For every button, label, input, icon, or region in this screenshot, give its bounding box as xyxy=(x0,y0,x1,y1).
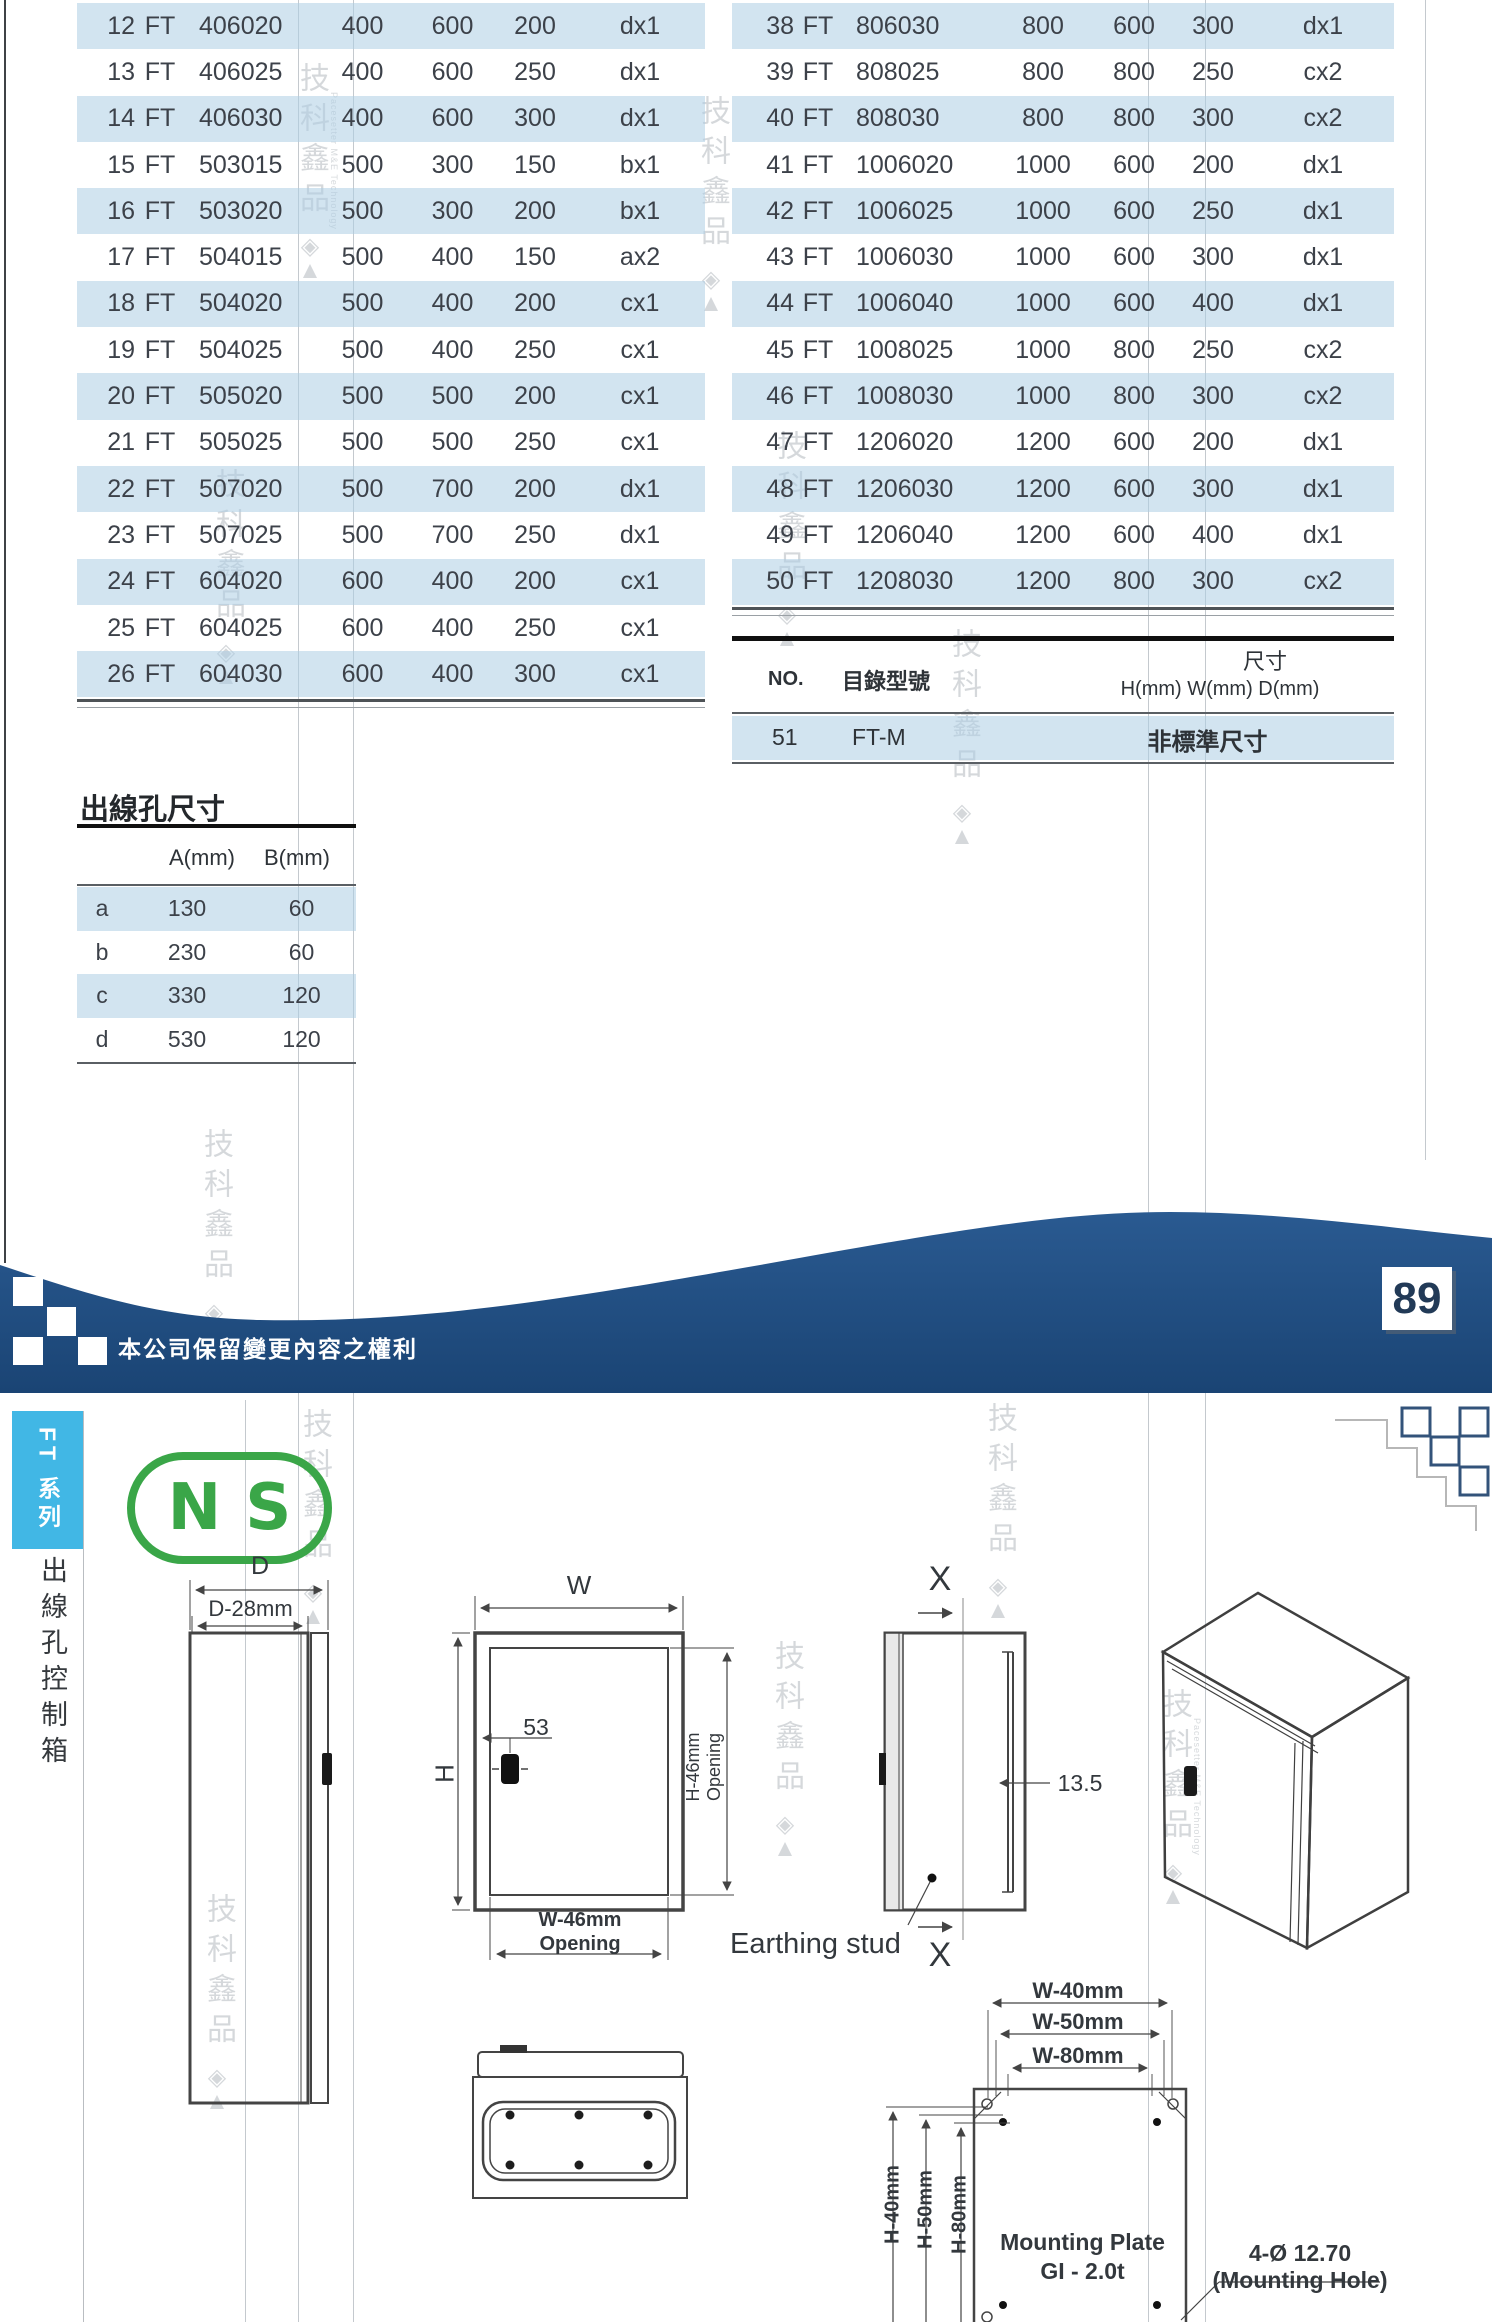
cell-brand: FT xyxy=(135,12,185,41)
custom-table-model-header: 目錄型號 xyxy=(842,664,930,696)
table-row: 50 FT 1208030 1200 800 300 cx2 xyxy=(732,559,1394,605)
cell-model: 504020 xyxy=(185,289,315,318)
cell-type: bx1 xyxy=(575,151,705,180)
table-end-rule xyxy=(732,607,1394,616)
cell-brand: FT xyxy=(794,521,842,550)
cell-model: 808030 xyxy=(842,104,992,133)
cell-model: 1008025 xyxy=(842,336,992,365)
cell-no: 48 xyxy=(732,475,794,504)
dim-label-h50: H-50mm xyxy=(915,2165,938,2255)
checker-square xyxy=(78,1337,107,1365)
cell-type: dx1 xyxy=(1252,243,1394,272)
cell-d: 200 xyxy=(495,12,575,41)
cell-no: 22 xyxy=(77,475,135,504)
cell-model: 406020 xyxy=(185,12,315,41)
cell-type: cx1 xyxy=(575,289,705,318)
cell-a: 130 xyxy=(127,895,247,922)
table-row: 38 FT 806030 800 600 300 dx1 xyxy=(732,3,1394,49)
cell-no: 16 xyxy=(77,197,135,226)
cell-type: cx1 xyxy=(575,336,705,365)
cell-brand: FT xyxy=(794,382,842,411)
cell-d: 200 xyxy=(1174,428,1252,457)
cell-d: 300 xyxy=(1174,104,1252,133)
cell-type: cx2 xyxy=(1252,336,1394,365)
cell-w: 600 xyxy=(1094,475,1174,504)
cell-a: 330 xyxy=(127,982,247,1009)
catalog-table-right: 38 FT 806030 800 600 300 dx1 39 FT 80802… xyxy=(732,3,1394,605)
cell-h: 500 xyxy=(315,197,410,226)
cell-w: 500 xyxy=(410,382,495,411)
side-view-drawing xyxy=(190,1580,332,2103)
catalog-table-left: 12 FT 406020 400 600 200 dx1 13 FT 40602… xyxy=(77,3,705,697)
cell-brand: FT xyxy=(794,336,842,365)
cell-no: 50 xyxy=(732,567,794,596)
cell-brand: FT xyxy=(135,614,185,643)
cell-d: 300 xyxy=(495,104,575,133)
cell-b: 120 xyxy=(247,1026,356,1053)
table-row: 45 FT 1008025 1000 800 250 cx2 xyxy=(732,327,1394,373)
table-row: 39 FT 808025 800 800 250 cx2 xyxy=(732,49,1394,95)
table-end-rule xyxy=(77,699,705,708)
section-mark-x-top: X xyxy=(915,1560,965,1599)
cell-h: 1200 xyxy=(992,428,1094,457)
cell-brand: FT xyxy=(135,567,185,596)
table-row: 16 FT 503020 500 300 200 bx1 xyxy=(77,188,705,234)
cell-no: 43 xyxy=(732,243,794,272)
cell-brand: FT xyxy=(794,104,842,133)
cell-w: 600 xyxy=(1094,428,1174,457)
cell-model: 504025 xyxy=(185,336,315,365)
table-row: 26 FT 604030 600 400 300 cx1 xyxy=(77,651,705,697)
cell-no: 19 xyxy=(77,336,135,365)
cell-type: dx1 xyxy=(1252,197,1394,226)
cell-model: 1006030 xyxy=(842,243,992,272)
cell-type: dx1 xyxy=(575,12,705,41)
table-row: a 130 60 xyxy=(77,887,356,931)
table-row: b 230 60 xyxy=(77,931,356,975)
cell-w: 700 xyxy=(410,475,495,504)
cell-type: ax2 xyxy=(575,243,705,272)
table-row: 47 FT 1206020 1200 600 200 dx1 xyxy=(732,420,1394,466)
cell-w: 600 xyxy=(1094,151,1174,180)
cell-no: 26 xyxy=(77,660,135,689)
bottom-view-drawing xyxy=(473,2045,687,2198)
cell-type: dx1 xyxy=(1252,428,1394,457)
cell-model: 604030 xyxy=(185,660,315,689)
table-row: 21 FT 505025 500 500 250 cx1 xyxy=(77,420,705,466)
cell-brand: FT xyxy=(135,243,185,272)
custom-table-size-header: 尺寸 xyxy=(1230,644,1300,676)
cell-model: 1208030 xyxy=(842,567,992,596)
table-row: 40 FT 808030 800 800 300 cx2 xyxy=(732,96,1394,142)
cell-h: 800 xyxy=(992,12,1094,41)
cell-w: 400 xyxy=(410,243,495,272)
cell-h: 500 xyxy=(315,475,410,504)
table-row: 14 FT 406030 400 600 300 dx1 xyxy=(77,96,705,142)
cell-brand: FT xyxy=(135,104,185,133)
cell-a: 530 xyxy=(127,1026,247,1053)
cell-h: 500 xyxy=(315,151,410,180)
table-row: 48 FT 1206030 1200 600 300 dx1 xyxy=(732,466,1394,512)
cell-model: 503015 xyxy=(185,151,315,180)
cell-brand: FT xyxy=(135,428,185,457)
cell-brand: FT xyxy=(794,243,842,272)
cell-brand: FT xyxy=(135,382,185,411)
cell-w: 400 xyxy=(410,336,495,365)
cell-b: 60 xyxy=(247,895,356,922)
dim-label-w46-opening: W-46mm Opening xyxy=(530,1908,630,1956)
cell-h: 400 xyxy=(315,104,410,133)
table-row: 15 FT 503015 500 300 150 bx1 xyxy=(77,142,705,188)
cell-brand: FT xyxy=(135,475,185,504)
cell-type: cx1 xyxy=(575,382,705,411)
checker-square xyxy=(47,1307,76,1336)
cell-d: 250 xyxy=(495,428,575,457)
cell-h: 400 xyxy=(315,12,410,41)
cell-model: 406025 xyxy=(185,58,315,87)
cell-model: 503020 xyxy=(185,197,315,226)
cell-brand: FT xyxy=(135,660,185,689)
cell-model: 1006020 xyxy=(842,151,992,180)
cell-type: cx1 xyxy=(575,614,705,643)
cell-type: cx1 xyxy=(575,567,705,596)
cell-w: 600 xyxy=(1094,12,1174,41)
cell-no: 46 xyxy=(732,382,794,411)
custom-table-size-subheader: H(mm) W(mm) D(mm) xyxy=(1095,678,1345,701)
cell-model: 1206030 xyxy=(842,475,992,504)
table-row: 43 FT 1006030 1000 600 300 dx1 xyxy=(732,234,1394,280)
cell-d: 200 xyxy=(495,475,575,504)
cell-model: 504015 xyxy=(185,243,315,272)
corner-decoration xyxy=(1335,1398,1500,1538)
page-edge-line xyxy=(4,0,6,1263)
cell-h: 1000 xyxy=(992,289,1094,318)
cell-no: 15 xyxy=(77,151,135,180)
cell-brand: FT xyxy=(794,428,842,457)
dim-label-135: 13.5 xyxy=(1048,1770,1112,1797)
cell-type: cx1 xyxy=(575,428,705,457)
cell-type: dx1 xyxy=(1252,521,1394,550)
table-row: 17 FT 504015 500 400 150 ax2 xyxy=(77,234,705,280)
cell-h: 600 xyxy=(315,614,410,643)
table-row: 49 FT 1206040 1200 600 400 dx1 xyxy=(732,512,1394,558)
cell-no: 14 xyxy=(77,104,135,133)
cell-type: dx1 xyxy=(575,475,705,504)
cell-d: 150 xyxy=(495,151,575,180)
cell-d: 250 xyxy=(1174,197,1252,226)
cell-b: 120 xyxy=(247,982,356,1009)
cell-h: 400 xyxy=(315,58,410,87)
cell-model: 1006025 xyxy=(842,197,992,226)
cell-w: 400 xyxy=(410,660,495,689)
cell-d: 300 xyxy=(495,660,575,689)
table-row: 41 FT 1006020 1000 600 200 dx1 xyxy=(732,142,1394,188)
cell-no: 23 xyxy=(77,521,135,550)
cell-d: 150 xyxy=(495,243,575,272)
opening-table-header-rule xyxy=(77,884,356,886)
custom-row-model: FT-M xyxy=(852,724,906,751)
cell-no: 45 xyxy=(732,336,794,365)
cell-h: 1200 xyxy=(992,567,1094,596)
cell-type: dx1 xyxy=(1252,289,1394,318)
section-view-drawing xyxy=(879,1598,1050,1940)
cell-brand: FT xyxy=(794,567,842,596)
cell-brand: FT xyxy=(135,336,185,365)
cell-model: 1206040 xyxy=(842,521,992,550)
cell-w: 600 xyxy=(1094,243,1174,272)
cell-model: 808025 xyxy=(842,58,992,87)
series-tab-label: FT 系列 xyxy=(31,1427,65,1533)
cell-h: 600 xyxy=(315,567,410,596)
cell-h: 500 xyxy=(315,243,410,272)
isometric-view-drawing xyxy=(1163,1593,1408,1948)
cell-brand: FT xyxy=(794,475,842,504)
table-row: 25 FT 604025 600 400 250 cx1 xyxy=(77,605,705,651)
table-row: c 330 120 xyxy=(77,974,356,1018)
cell-type: cx1 xyxy=(575,660,705,689)
page-number: 89 xyxy=(1393,1274,1442,1324)
opening-table: a 130 60 b 230 60 c 330 120 d 530 120 xyxy=(77,887,356,1061)
cell-w: 600 xyxy=(1094,289,1174,318)
cell-type: cx2 xyxy=(1252,382,1394,411)
cell-w: 600 xyxy=(1094,521,1174,550)
table-row: 46 FT 1008030 1000 800 300 cx2 xyxy=(732,373,1394,419)
custom-table-header-rule xyxy=(732,712,1394,714)
cell-type: cx2 xyxy=(1252,567,1394,596)
cell-d: 250 xyxy=(495,614,575,643)
cell-brand: FT xyxy=(794,151,842,180)
cell-w: 600 xyxy=(410,12,495,41)
cell-h: 500 xyxy=(315,336,410,365)
dim-label-d28: D-28mm xyxy=(198,1596,303,1622)
cell-no: 49 xyxy=(732,521,794,550)
cell-w: 600 xyxy=(410,58,495,87)
cell-brand: FT xyxy=(135,289,185,318)
cell-type: dx1 xyxy=(575,58,705,87)
cell-d: 300 xyxy=(1174,243,1252,272)
cell-type: dx1 xyxy=(1252,12,1394,41)
cell-h: 800 xyxy=(992,58,1094,87)
cell-w: 300 xyxy=(410,197,495,226)
cell-no: 41 xyxy=(732,151,794,180)
cell-d: 250 xyxy=(1174,58,1252,87)
cell-h: 600 xyxy=(315,660,410,689)
cell-brand: FT xyxy=(135,521,185,550)
cell-d: 200 xyxy=(495,289,575,318)
cell-no: 42 xyxy=(732,197,794,226)
table-row: 13 FT 406025 400 600 250 dx1 xyxy=(77,49,705,95)
dim-label-d: D xyxy=(238,1552,282,1581)
cell-model: 505025 xyxy=(185,428,315,457)
cell-brand: FT xyxy=(794,12,842,41)
dim-label-h40: H-40mm xyxy=(882,2160,905,2250)
table-row: 44 FT 1006040 1000 600 400 dx1 xyxy=(732,281,1394,327)
cell-d: 250 xyxy=(495,521,575,550)
table-row: 18 FT 504020 500 400 200 cx1 xyxy=(77,281,705,327)
cell-d: 250 xyxy=(495,58,575,87)
table-row: 22 FT 507020 500 700 200 dx1 xyxy=(77,466,705,512)
cell-no: 12 xyxy=(77,12,135,41)
catalog-page: 技科鑫品 ◈▲ Pacesetter M&E Technology 技科鑫品 ◈… xyxy=(0,0,1500,2322)
cell-w: 600 xyxy=(410,104,495,133)
cell-h: 800 xyxy=(992,104,1094,133)
cell-no: 18 xyxy=(77,289,135,318)
cell-w: 300 xyxy=(410,151,495,180)
table-row: 42 FT 1006025 1000 600 250 dx1 xyxy=(732,188,1394,234)
cell-h: 1200 xyxy=(992,521,1094,550)
cell-type: bx1 xyxy=(575,197,705,226)
cell-h: 1000 xyxy=(992,197,1094,226)
cell-w: 800 xyxy=(1094,104,1174,133)
dim-label-h46-opening: H-46mm Opening xyxy=(683,1711,725,1823)
cell-d: 200 xyxy=(495,382,575,411)
cell-w: 800 xyxy=(1094,336,1174,365)
cell-no: 25 xyxy=(77,614,135,643)
cell-model: 806030 xyxy=(842,12,992,41)
opening-table-bottom-rule xyxy=(77,1062,356,1064)
cell-model: 1206020 xyxy=(842,428,992,457)
cell-no: 20 xyxy=(77,382,135,411)
dim-label-h: H xyxy=(430,1754,461,1794)
table-row: 24 FT 604020 600 400 200 cx1 xyxy=(77,559,705,605)
cell-brand: FT xyxy=(794,58,842,87)
cell-brand: FT xyxy=(135,197,185,226)
cell-model: 604025 xyxy=(185,614,315,643)
cell-d: 400 xyxy=(1174,289,1252,318)
cell-b: 60 xyxy=(247,939,356,966)
cell-model: 507020 xyxy=(185,475,315,504)
cell-no: 38 xyxy=(732,12,794,41)
cell-brand: FT xyxy=(135,58,185,87)
table-row: d 530 120 xyxy=(77,1018,356,1062)
guide-line xyxy=(1425,0,1426,1160)
watermark-logo-icon: ◈▲ xyxy=(941,801,983,849)
cell-d: 250 xyxy=(1174,336,1252,365)
cell-type: dx1 xyxy=(575,521,705,550)
cell-type: dx1 xyxy=(1252,151,1394,180)
table-row: 19 FT 504025 500 400 250 cx1 xyxy=(77,327,705,373)
checker-square xyxy=(13,1337,43,1365)
cell-w: 800 xyxy=(1094,567,1174,596)
cell-d: 300 xyxy=(1174,475,1252,504)
cell-key: d xyxy=(77,1026,127,1053)
table-row: 23 FT 507025 500 700 250 dx1 xyxy=(77,512,705,558)
cell-d: 300 xyxy=(1174,382,1252,411)
dim-label-w80: W-80mm xyxy=(1028,2043,1128,2069)
custom-table-no-header: NO. xyxy=(768,668,804,691)
cell-brand: FT xyxy=(794,289,842,318)
cell-d: 200 xyxy=(495,197,575,226)
dim-label-h80: H-80mm xyxy=(949,2170,972,2260)
cell-h: 1000 xyxy=(992,151,1094,180)
cell-type: cx2 xyxy=(1252,58,1394,87)
cell-d: 300 xyxy=(1174,12,1252,41)
cell-h: 500 xyxy=(315,428,410,457)
cell-no: 21 xyxy=(77,428,135,457)
cell-no: 13 xyxy=(77,58,135,87)
ns-logo-text: NS xyxy=(144,1471,316,1545)
cell-type: dx1 xyxy=(1252,475,1394,504)
cell-no: 47 xyxy=(732,428,794,457)
cell-a: 230 xyxy=(127,939,247,966)
cell-w: 800 xyxy=(1094,382,1174,411)
cell-key: c xyxy=(77,982,127,1009)
cell-w: 800 xyxy=(1094,58,1174,87)
cell-type: dx1 xyxy=(575,104,705,133)
cell-w: 400 xyxy=(410,567,495,596)
cell-w: 600 xyxy=(1094,197,1174,226)
cell-no: 39 xyxy=(732,58,794,87)
cell-w: 400 xyxy=(410,614,495,643)
cell-no: 17 xyxy=(77,243,135,272)
opening-table-col-a: A(mm) xyxy=(147,845,257,871)
cell-no: 44 xyxy=(732,289,794,318)
cell-h: 1000 xyxy=(992,382,1094,411)
cell-h: 500 xyxy=(315,289,410,318)
cell-h: 1000 xyxy=(992,336,1094,365)
page-number-badge: 89 xyxy=(1382,1267,1452,1330)
dim-label-53: 53 xyxy=(514,1714,558,1741)
cell-key: a xyxy=(77,895,127,922)
cell-type: cx2 xyxy=(1252,104,1394,133)
cell-h: 500 xyxy=(315,382,410,411)
cell-model: 1008030 xyxy=(842,382,992,411)
custom-table-top-rule xyxy=(732,636,1394,641)
cell-h: 1200 xyxy=(992,475,1094,504)
cell-model: 406030 xyxy=(185,104,315,133)
rights-note: 本公司保留變更內容之權利 xyxy=(118,1330,418,1364)
cell-h: 1000 xyxy=(992,243,1094,272)
custom-table-bottom-rule xyxy=(732,762,1394,764)
dim-label-w: W xyxy=(549,1570,609,1601)
mounting-hole-label: 4-Ø 12.70 (Mounting Hole) xyxy=(1205,2240,1395,2294)
opening-table-title: 出線孔尺寸 xyxy=(80,786,225,828)
cell-w: 500 xyxy=(410,428,495,457)
cell-d: 250 xyxy=(495,336,575,365)
cell-brand: FT xyxy=(135,151,185,180)
cell-model: 505020 xyxy=(185,382,315,411)
series-tab: FT 系列 xyxy=(12,1411,83,1549)
cell-d: 400 xyxy=(1174,521,1252,550)
earthing-stud-label: Earthing stud xyxy=(730,1928,925,1961)
cell-model: 604020 xyxy=(185,567,315,596)
custom-row-size: 非標準尺寸 xyxy=(1090,722,1325,757)
cell-w: 700 xyxy=(410,521,495,550)
cell-brand: FT xyxy=(794,197,842,226)
cell-model: 1006040 xyxy=(842,289,992,318)
checker-square xyxy=(13,1277,43,1306)
dim-label-w50: W-50mm xyxy=(1028,2009,1128,2035)
dim-label-w40: W-40mm xyxy=(1028,1978,1128,2004)
cell-no: 40 xyxy=(732,104,794,133)
cell-no: 24 xyxy=(77,567,135,596)
cell-d: 300 xyxy=(1174,567,1252,596)
table-row: 20 FT 505020 500 500 200 cx1 xyxy=(77,373,705,419)
mounting-plate-title: Mounting Plate GI - 2.0t xyxy=(1000,2228,1165,2286)
custom-row-no: 51 xyxy=(772,724,798,751)
cell-d: 200 xyxy=(1174,151,1252,180)
cell-w: 400 xyxy=(410,289,495,318)
cell-key: b xyxy=(77,939,127,966)
opening-table-col-b: B(mm) xyxy=(247,845,347,871)
table-row: 12 FT 406020 400 600 200 dx1 xyxy=(77,3,705,49)
cell-d: 200 xyxy=(495,567,575,596)
cell-h: 500 xyxy=(315,521,410,550)
cell-model: 507025 xyxy=(185,521,315,550)
